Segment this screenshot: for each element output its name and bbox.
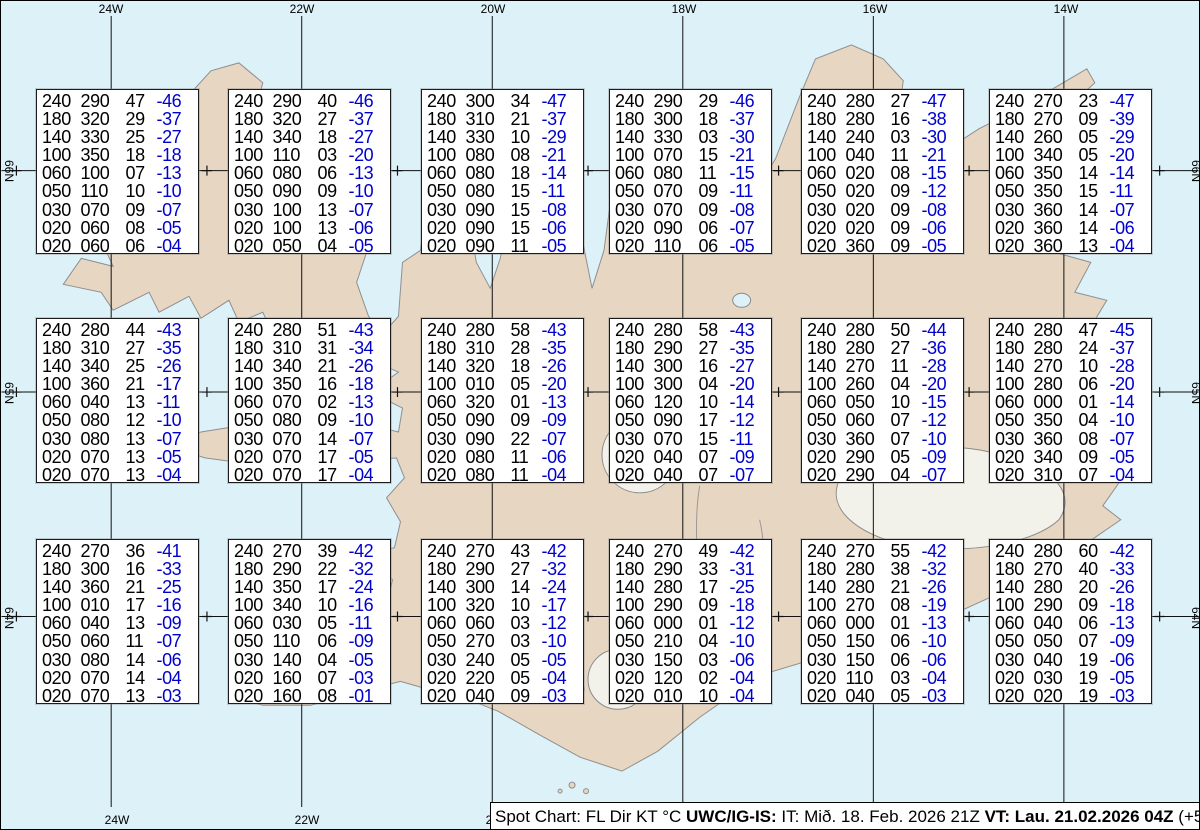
- fl-value: 050: [42, 411, 80, 429]
- fl-value: 030: [427, 201, 465, 219]
- kt-value: 14: [126, 651, 157, 669]
- vestmannaeyjar-islet: [584, 789, 589, 794]
- fl-value: 050: [995, 182, 1033, 200]
- fl-value: 030: [42, 651, 80, 669]
- kt-value: 09: [1079, 448, 1110, 466]
- graticule-cross: [202, 387, 212, 397]
- spot-row: 06006003-12: [427, 614, 579, 632]
- spot-row: 10004011-21: [807, 146, 959, 164]
- dir-value: 340: [80, 357, 125, 375]
- temp-value: -46: [348, 92, 386, 110]
- fl-value: 050: [807, 411, 845, 429]
- fl-value: 140: [42, 128, 80, 146]
- kt-value: 04: [318, 651, 349, 669]
- fl-value: 020: [427, 237, 465, 255]
- dir-value: 010: [653, 687, 698, 705]
- temp-value: -08: [729, 201, 767, 219]
- dir-value: 000: [1033, 393, 1078, 411]
- temp-value: -37: [1109, 339, 1147, 357]
- dir-value: 030: [1033, 669, 1078, 687]
- spot-row: 10034005-20: [995, 146, 1147, 164]
- kt-value: 03: [891, 669, 922, 687]
- dir-value: 340: [1033, 448, 1078, 466]
- temp-value: -20: [1109, 375, 1147, 393]
- dir-value: 290: [272, 92, 317, 110]
- temp-value: -21: [541, 146, 579, 164]
- spot-row: 14034025-26: [42, 357, 194, 375]
- spot-row: 06000001-13: [807, 614, 959, 632]
- dir-value: 150: [845, 632, 890, 650]
- fl-value: 020: [234, 219, 272, 237]
- fl-value: 100: [807, 375, 845, 393]
- temp-value: -43: [729, 321, 767, 339]
- fl-value: 030: [807, 430, 845, 448]
- kt-value: 28: [511, 339, 542, 357]
- fl-value: 060: [615, 164, 653, 182]
- spot-row: 03009022-07: [427, 430, 579, 448]
- dir-value: 280: [845, 339, 890, 357]
- spot-row: 03007009-07: [42, 201, 194, 219]
- kt-value: 04: [891, 466, 922, 484]
- dir-value: 350: [80, 146, 125, 164]
- kt-value: 20: [1079, 578, 1110, 596]
- spot-row: 10001005-20: [427, 375, 579, 393]
- dir-value: 280: [845, 578, 890, 596]
- spot-row: 02003019-05: [995, 669, 1147, 687]
- fl-value: 050: [42, 632, 80, 650]
- spot-row: 03007009-08: [615, 201, 767, 219]
- kt-value: 43: [511, 542, 542, 560]
- spot-row: 14028020-26: [995, 578, 1147, 596]
- dir-value: 280: [653, 578, 698, 596]
- dir-value: 280: [845, 110, 890, 128]
- dir-value: 070: [272, 466, 317, 484]
- temp-value: -11: [1109, 182, 1147, 200]
- kt-value: 16: [699, 357, 730, 375]
- dir-value: 310: [1033, 466, 1078, 484]
- dir-value: 290: [653, 560, 698, 578]
- temp-value: -27: [729, 357, 767, 375]
- dir-value: 080: [272, 164, 317, 182]
- spot-row: 06007002-13: [234, 393, 386, 411]
- spot-row: 05005007-09: [995, 632, 1147, 650]
- spot-row: 02007013-03: [42, 687, 194, 705]
- spot-row: 05035004-10: [995, 411, 1147, 429]
- vestmannaeyjar-islet: [569, 782, 575, 788]
- temp-value: -31: [729, 560, 767, 578]
- kt-value: 13: [1079, 237, 1110, 255]
- temp-value: -42: [729, 542, 767, 560]
- kt-value: 03: [891, 128, 922, 146]
- kt-value: 09: [891, 237, 922, 255]
- temp-value: -21: [921, 146, 959, 164]
- kt-value: 09: [318, 182, 349, 200]
- dir-value: 080: [80, 430, 125, 448]
- temp-value: -04: [348, 466, 386, 484]
- temp-value: -11: [729, 430, 767, 448]
- dir-value: 240: [845, 128, 890, 146]
- dir-value: 270: [272, 542, 317, 560]
- spot-data-box: 24027036-4118030016-3314036021-251000101…: [36, 539, 199, 704]
- fl-value: 180: [995, 339, 1033, 357]
- kt-value: 10: [1079, 357, 1110, 375]
- kt-value: 13: [126, 466, 157, 484]
- spot-data-box: 24027049-4218029033-3114028017-251002900…: [609, 539, 772, 704]
- spot-row: 05015006-10: [807, 632, 959, 650]
- spot-row: 02022005-04: [427, 669, 579, 687]
- fl-value: 240: [807, 92, 845, 110]
- temp-value: -08: [541, 201, 579, 219]
- latitude-label-left: 66N: [3, 160, 15, 182]
- temp-value: -14: [1109, 164, 1147, 182]
- kt-value: 10: [699, 687, 730, 705]
- kt-value: 09: [511, 687, 542, 705]
- kt-value: 09: [699, 201, 730, 219]
- fl-value: 100: [995, 146, 1033, 164]
- fl-value: 140: [234, 128, 272, 146]
- spot-data-box: 24028051-4318031031-3414034021-261003501…: [228, 318, 391, 483]
- kt-value: 19: [1079, 687, 1110, 705]
- fl-value: 020: [615, 466, 653, 484]
- spot-row: 02009015-06: [427, 219, 579, 237]
- temp-value: -33: [156, 560, 194, 578]
- dir-value: 290: [272, 560, 317, 578]
- dir-value: 070: [272, 393, 317, 411]
- fl-value: 100: [234, 146, 272, 164]
- dir-value: 270: [465, 632, 510, 650]
- temp-value: -19: [921, 596, 959, 614]
- spot-data-box: 24028027-4718028016-3814024003-301000401…: [801, 89, 964, 254]
- temp-value: -44: [921, 321, 959, 339]
- kt-value: 10: [891, 393, 922, 411]
- fl-value: 100: [995, 596, 1033, 614]
- temp-value: -26: [348, 357, 386, 375]
- kt-value: 21: [318, 357, 349, 375]
- dir-value: 040: [80, 393, 125, 411]
- dir-value: 070: [272, 448, 317, 466]
- fl-value: 240: [615, 92, 653, 110]
- kt-value: 08: [511, 146, 542, 164]
- dir-value: 340: [272, 596, 317, 614]
- dir-value: 260: [1033, 128, 1078, 146]
- spot-row: 03024005-05: [427, 651, 579, 669]
- kt-value: 14: [1079, 219, 1110, 237]
- fl-value: 020: [615, 669, 653, 687]
- dir-value: 100: [272, 201, 317, 219]
- kt-value: 11: [511, 466, 542, 484]
- dir-value: 270: [465, 542, 510, 560]
- fl-value: 050: [615, 632, 653, 650]
- dir-value: 270: [845, 596, 890, 614]
- dir-value: 090: [465, 201, 510, 219]
- temp-value: -07: [156, 430, 194, 448]
- fl-value: 020: [427, 466, 465, 484]
- spot-row: 02016007-03: [234, 669, 386, 687]
- temp-value: -04: [156, 237, 194, 255]
- fl-value: 100: [234, 375, 272, 393]
- spot-data-box: 24027055-4218028038-3214028021-261002700…: [801, 539, 964, 704]
- dir-value: 300: [653, 375, 698, 393]
- temp-value: -41: [156, 542, 194, 560]
- temp-value: -21: [729, 146, 767, 164]
- temp-value: -46: [156, 92, 194, 110]
- spot-row: 24028058-43: [615, 321, 767, 339]
- fl-value: 140: [995, 578, 1033, 596]
- temp-value: -29: [541, 128, 579, 146]
- temp-value: -28: [921, 357, 959, 375]
- temp-value: -13: [921, 614, 959, 632]
- fl-value: 060: [807, 614, 845, 632]
- temp-value: -43: [348, 321, 386, 339]
- spot-row: 03036014-07: [995, 201, 1147, 219]
- kt-value: 11: [699, 164, 730, 182]
- dir-value: 000: [653, 614, 698, 632]
- kt-value: 11: [126, 632, 157, 650]
- fl-value: 060: [995, 614, 1033, 632]
- dir-value: 120: [653, 669, 698, 687]
- dir-value: 050: [845, 393, 890, 411]
- spot-row: 05011006-09: [234, 632, 386, 650]
- spot-row: 24028047-45: [995, 321, 1147, 339]
- kt-value: 10: [511, 128, 542, 146]
- fl-value: 140: [427, 578, 465, 596]
- spot-row: 03007014-07: [234, 430, 386, 448]
- spot-row: 10029009-18: [615, 596, 767, 614]
- fl-value: 240: [427, 92, 465, 110]
- spot-row: 18031027-35: [42, 339, 194, 357]
- kt-value: 11: [511, 237, 542, 255]
- fl-value: 100: [234, 596, 272, 614]
- spot-row: 02008011-04: [427, 466, 579, 484]
- spot-row: 14027011-28: [807, 357, 959, 375]
- spot-row: 10026004-20: [807, 375, 959, 393]
- kt-value: 21: [511, 110, 542, 128]
- temp-value: -16: [156, 596, 194, 614]
- dir-value: 280: [1033, 375, 1078, 393]
- temp-value: -25: [156, 578, 194, 596]
- temp-value: -24: [541, 578, 579, 596]
- spot-data-box: 24029047-4618032029-3714033025-271003501…: [36, 89, 199, 254]
- graticule-cross: [964, 612, 974, 622]
- spot-data-box: 24028050-4418028027-3614027011-281002600…: [801, 318, 964, 483]
- dir-value: 270: [653, 542, 698, 560]
- kt-value: 27: [891, 92, 922, 110]
- fl-value: 180: [995, 110, 1033, 128]
- kt-value: 15: [699, 146, 730, 164]
- kt-value: 27: [511, 560, 542, 578]
- spot-row: 02010013-06: [234, 219, 386, 237]
- dir-value: 110: [80, 182, 125, 200]
- dir-value: 040: [1033, 614, 1078, 632]
- spot-row: 18028024-37: [995, 339, 1147, 357]
- spot-row: 03014004-05: [234, 651, 386, 669]
- spot-row: 10029009-18: [995, 596, 1147, 614]
- fl-value: 030: [42, 430, 80, 448]
- dir-value: 310: [272, 339, 317, 357]
- temp-value: -03: [348, 669, 386, 687]
- kt-value: 14: [1079, 164, 1110, 182]
- kt-value: 06: [699, 219, 730, 237]
- spot-row: 06004006-13: [995, 614, 1147, 632]
- spot-row: 10036021-17: [42, 375, 194, 393]
- kt-value: 51: [318, 321, 349, 339]
- spot-row: 05027003-10: [427, 632, 579, 650]
- fl-value: 050: [42, 182, 80, 200]
- fl-value: 140: [807, 128, 845, 146]
- spot-row: 02008011-06: [427, 448, 579, 466]
- temp-value: -27: [156, 128, 194, 146]
- temp-value: -10: [921, 632, 959, 650]
- dir-value: 290: [653, 92, 698, 110]
- dir-value: 270: [80, 542, 125, 560]
- kt-value: 04: [891, 375, 922, 393]
- kt-value: 21: [891, 578, 922, 596]
- kt-value: 05: [511, 375, 542, 393]
- spot-row: 03007015-11: [615, 430, 767, 448]
- fl-value: 240: [42, 321, 80, 339]
- fl-value: 240: [995, 542, 1033, 560]
- kt-value: 13: [318, 201, 349, 219]
- kt-value: 04: [699, 375, 730, 393]
- temp-value: -07: [156, 632, 194, 650]
- kt-value: 17: [126, 596, 157, 614]
- fl-value: 050: [427, 411, 465, 429]
- fl-value: 140: [427, 357, 465, 375]
- dir-value: 060: [80, 219, 125, 237]
- spot-row: 18032027-37: [234, 110, 386, 128]
- temp-value: -09: [1109, 632, 1147, 650]
- dir-value: 090: [653, 411, 698, 429]
- spot-row: 18031028-35: [427, 339, 579, 357]
- kt-value: 27: [891, 339, 922, 357]
- spot-row: 03015003-06: [615, 651, 767, 669]
- temp-value: -26: [921, 578, 959, 596]
- spot-row: 24028050-44: [807, 321, 959, 339]
- fl-value: 030: [427, 430, 465, 448]
- fl-value: 100: [42, 596, 80, 614]
- dir-value: 070: [80, 201, 125, 219]
- fl-value: 050: [615, 182, 653, 200]
- temp-value: -10: [921, 430, 959, 448]
- dir-value: 050: [272, 237, 317, 255]
- spot-row: 02029005-09: [807, 448, 959, 466]
- spot-row: 24029040-46: [234, 92, 386, 110]
- fl-value: 030: [234, 201, 272, 219]
- kt-value: 13: [126, 614, 157, 632]
- fl-value: 240: [42, 542, 80, 560]
- kt-value: 09: [891, 219, 922, 237]
- dir-value: 040: [845, 146, 890, 164]
- spot-row: 10007015-21: [615, 146, 767, 164]
- dir-value: 070: [653, 201, 698, 219]
- fl-value: 100: [42, 375, 80, 393]
- spot-row: 03009015-08: [427, 201, 579, 219]
- kt-value: 13: [126, 687, 157, 705]
- fl-value: 100: [427, 375, 465, 393]
- fl-value: 060: [995, 164, 1033, 182]
- fl-value: 180: [42, 560, 80, 578]
- kt-value: 02: [318, 393, 349, 411]
- temp-value: -05: [921, 237, 959, 255]
- dir-value: 000: [845, 614, 890, 632]
- spot-row: 02004007-09: [615, 448, 767, 466]
- spot-data-box: 24027043-4218029027-3214030014-241003201…: [421, 539, 584, 704]
- fl-value: 100: [807, 596, 845, 614]
- fl-value: 240: [427, 542, 465, 560]
- fl-value: 030: [427, 651, 465, 669]
- dir-value: 030: [272, 614, 317, 632]
- temp-value: -06: [1109, 651, 1147, 669]
- fl-value: 180: [995, 560, 1033, 578]
- kt-value: 07: [699, 448, 730, 466]
- spot-row: 24028044-43: [42, 321, 194, 339]
- dir-value: 040: [845, 687, 890, 705]
- temp-value: -05: [541, 237, 579, 255]
- longitude-label-top: 18W: [672, 3, 697, 15]
- fl-value: 050: [427, 182, 465, 200]
- spot-row: 06008018-14: [427, 164, 579, 182]
- dir-value: 020: [845, 219, 890, 237]
- kt-value: 31: [318, 339, 349, 357]
- fl-value: 060: [42, 614, 80, 632]
- fl-value: 020: [807, 219, 845, 237]
- kt-value: 05: [891, 687, 922, 705]
- kt-value: 17: [318, 578, 349, 596]
- kt-value: 07: [318, 669, 349, 687]
- dir-value: 150: [653, 651, 698, 669]
- dir-value: 070: [653, 146, 698, 164]
- kt-value: 10: [126, 182, 157, 200]
- temp-value: -12: [921, 182, 959, 200]
- temp-value: -12: [921, 411, 959, 429]
- temp-value: -46: [729, 92, 767, 110]
- dir-value: 320: [272, 110, 317, 128]
- temp-value: -11: [729, 182, 767, 200]
- spot-row: 06008006-13: [234, 164, 386, 182]
- kt-value: 15: [511, 201, 542, 219]
- temp-value: -04: [1109, 466, 1147, 484]
- temp-value: -42: [541, 542, 579, 560]
- temp-value: -35: [729, 339, 767, 357]
- temp-value: -18: [348, 375, 386, 393]
- graticule-cross: [393, 166, 403, 176]
- dir-value: 060: [465, 614, 510, 632]
- spot-row: 10035016-18: [234, 375, 386, 393]
- fl-value: 140: [615, 357, 653, 375]
- dir-value: 300: [653, 110, 698, 128]
- kt-value: 13: [126, 393, 157, 411]
- dir-value: 320: [465, 393, 510, 411]
- temp-value: -47: [541, 92, 579, 110]
- fl-value: 030: [234, 430, 272, 448]
- fl-value: 020: [615, 237, 653, 255]
- temp-value: -07: [1109, 201, 1147, 219]
- temp-value: -37: [156, 110, 194, 128]
- spot-row: 18030016-33: [42, 560, 194, 578]
- dir-value: 070: [80, 669, 125, 687]
- kt-value: 05: [891, 448, 922, 466]
- fl-value: 140: [807, 357, 845, 375]
- dir-value: 340: [1033, 146, 1078, 164]
- spot-row: 02004007-07: [615, 466, 767, 484]
- dir-value: 080: [272, 411, 317, 429]
- temp-value: -13: [348, 393, 386, 411]
- fl-value: 240: [615, 321, 653, 339]
- temp-value: -06: [921, 651, 959, 669]
- temp-value: -32: [541, 560, 579, 578]
- spot-row: 06000001-12: [615, 614, 767, 632]
- spot-row: 18031021-37: [427, 110, 579, 128]
